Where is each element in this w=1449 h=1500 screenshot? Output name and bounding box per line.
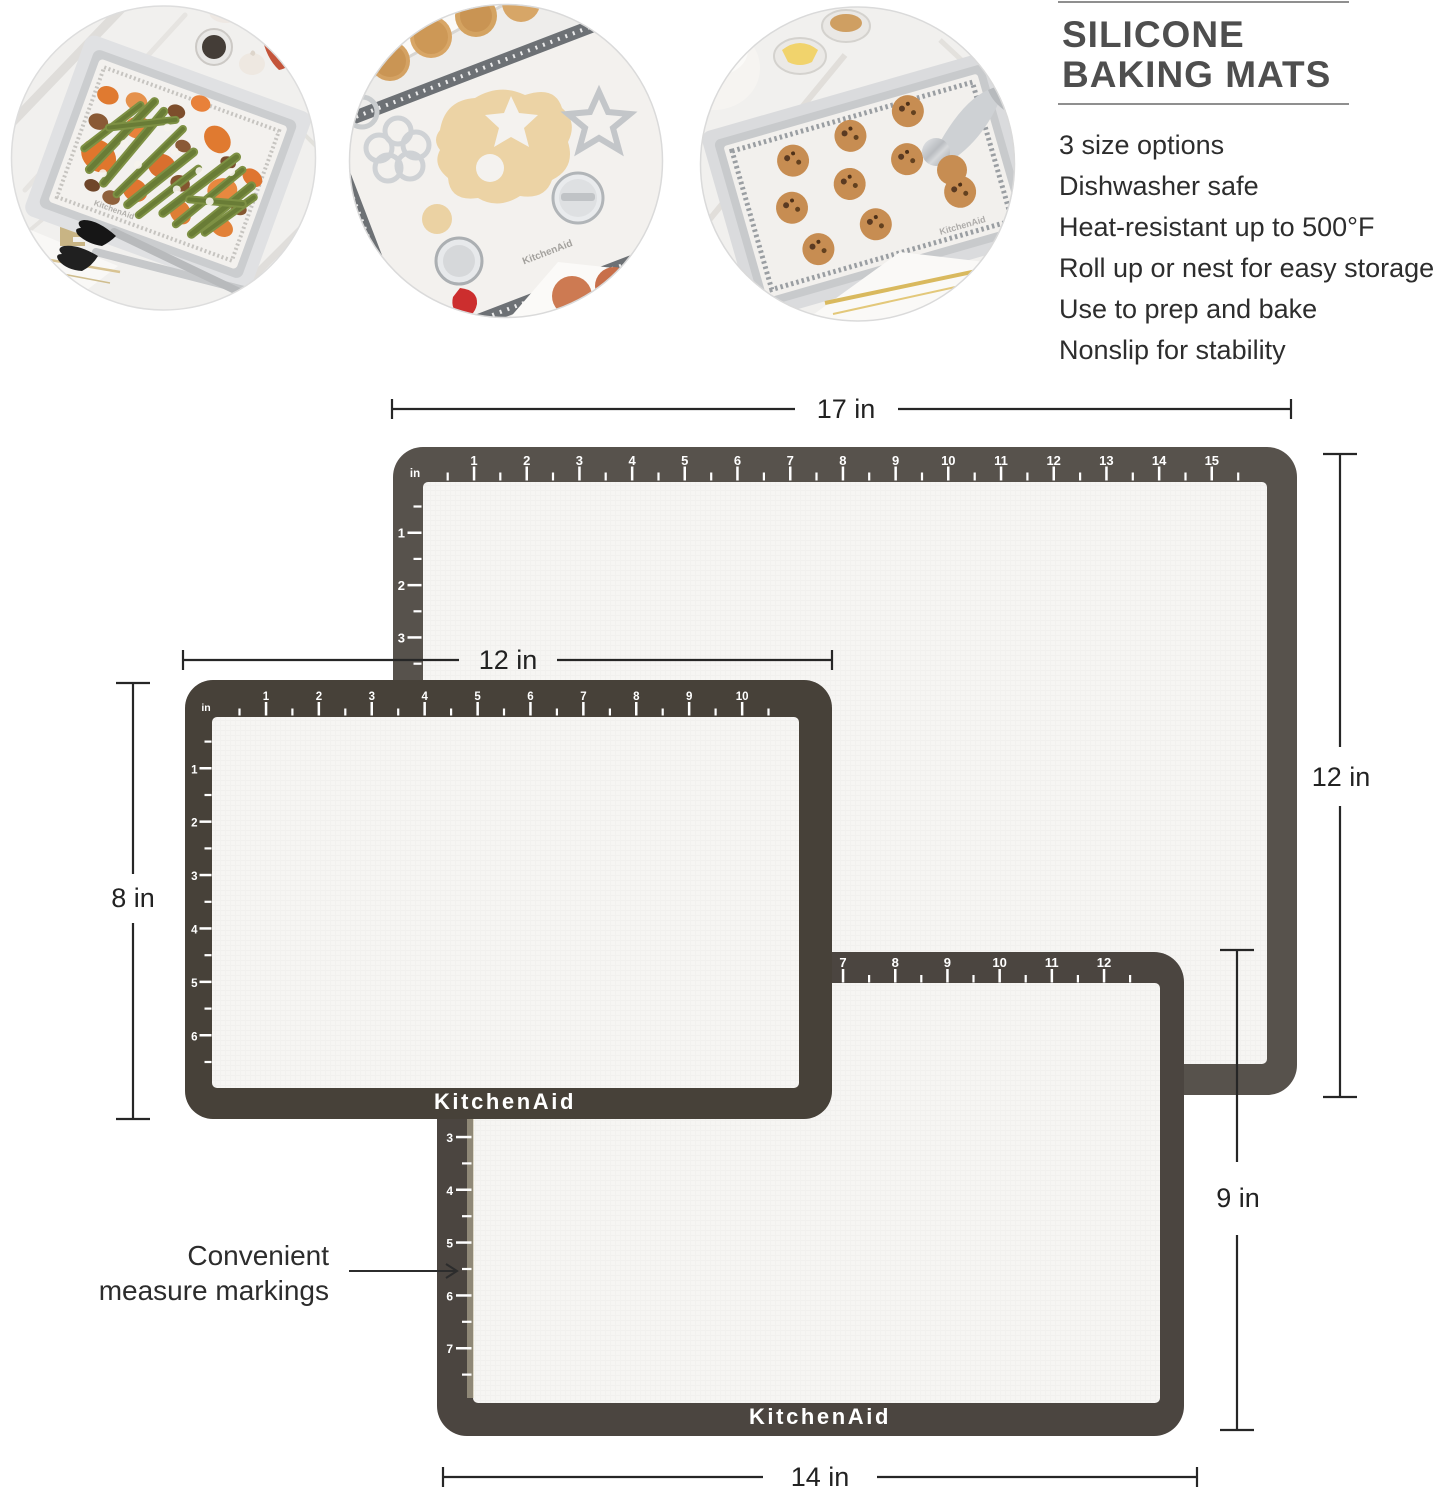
- svg-text:1: 1: [470, 453, 477, 468]
- svg-text:3: 3: [576, 453, 583, 468]
- svg-text:4: 4: [446, 1184, 453, 1198]
- svg-text:10: 10: [992, 955, 1006, 970]
- svg-text:1: 1: [398, 526, 405, 541]
- svg-text:5: 5: [446, 1237, 453, 1251]
- svg-text:1: 1: [191, 764, 198, 776]
- svg-text:7: 7: [580, 691, 586, 703]
- svg-text:2: 2: [523, 453, 530, 468]
- svg-text:5: 5: [681, 453, 688, 468]
- svg-text:measure markings: measure markings: [99, 1275, 329, 1306]
- svg-text:4: 4: [628, 453, 636, 468]
- svg-text:7: 7: [787, 453, 794, 468]
- svg-text:in: in: [410, 468, 420, 480]
- svg-text:KitchenAid: KitchenAid: [749, 1404, 891, 1429]
- svg-text:3: 3: [191, 871, 197, 883]
- svg-text:6: 6: [191, 1031, 197, 1043]
- svg-text:in: in: [201, 702, 210, 714]
- svg-text:9: 9: [686, 691, 692, 703]
- svg-text:Roll up or nest for easy stora: Roll up or nest for easy storage: [1059, 253, 1434, 283]
- svg-text:3: 3: [369, 691, 375, 703]
- svg-text:4: 4: [421, 691, 428, 703]
- svg-text:3: 3: [446, 1131, 453, 1145]
- svg-text:2: 2: [398, 578, 405, 593]
- svg-text:9: 9: [944, 955, 951, 970]
- svg-text:15: 15: [1205, 453, 1219, 468]
- svg-text:11: 11: [1045, 955, 1059, 970]
- svg-text:2: 2: [316, 691, 322, 703]
- svg-text:8: 8: [839, 453, 846, 468]
- svg-text:Use to prep and bake: Use to prep and bake: [1059, 294, 1317, 324]
- svg-text:14: 14: [1152, 453, 1167, 468]
- svg-text:Dishwasher safe: Dishwasher safe: [1059, 171, 1259, 201]
- svg-text:11: 11: [994, 453, 1008, 468]
- svg-text:9: 9: [892, 453, 899, 468]
- svg-text:6: 6: [734, 453, 741, 468]
- svg-text:9 in: 9 in: [1216, 1183, 1260, 1213]
- svg-text:8: 8: [633, 691, 640, 703]
- svg-text:Nonslip for stability: Nonslip for stability: [1059, 335, 1286, 365]
- svg-text:10: 10: [736, 691, 749, 703]
- svg-text:8 in: 8 in: [111, 883, 155, 913]
- svg-text:Heat-resistant up to 500°F: Heat-resistant up to 500°F: [1059, 212, 1374, 242]
- svg-text:7: 7: [839, 955, 846, 970]
- svg-text:17 in: 17 in: [817, 394, 876, 424]
- svg-text:6: 6: [446, 1289, 453, 1303]
- svg-text:12: 12: [1097, 955, 1111, 970]
- svg-text:SILICONE: SILICONE: [1062, 14, 1245, 55]
- svg-text:12: 12: [1046, 453, 1060, 468]
- svg-text:3: 3: [398, 631, 405, 646]
- svg-text:4: 4: [191, 925, 198, 937]
- svg-text:3 size options: 3 size options: [1059, 130, 1224, 160]
- svg-text:BAKING MATS: BAKING MATS: [1062, 54, 1331, 95]
- svg-text:13: 13: [1099, 453, 1113, 468]
- svg-text:10: 10: [941, 453, 955, 468]
- svg-text:7: 7: [446, 1342, 453, 1356]
- svg-text:5: 5: [474, 691, 481, 703]
- svg-text:5: 5: [191, 978, 198, 990]
- svg-text:6: 6: [527, 691, 533, 703]
- svg-text:8: 8: [892, 955, 899, 970]
- svg-text:2: 2: [191, 818, 197, 830]
- svg-text:12 in: 12 in: [1312, 762, 1371, 792]
- svg-text:KitchenAid: KitchenAid: [434, 1089, 576, 1114]
- svg-text:14 in: 14 in: [791, 1462, 850, 1492]
- svg-text:12 in: 12 in: [479, 645, 538, 675]
- svg-text:Convenient: Convenient: [187, 1240, 329, 1271]
- svg-text:1: 1: [263, 691, 270, 703]
